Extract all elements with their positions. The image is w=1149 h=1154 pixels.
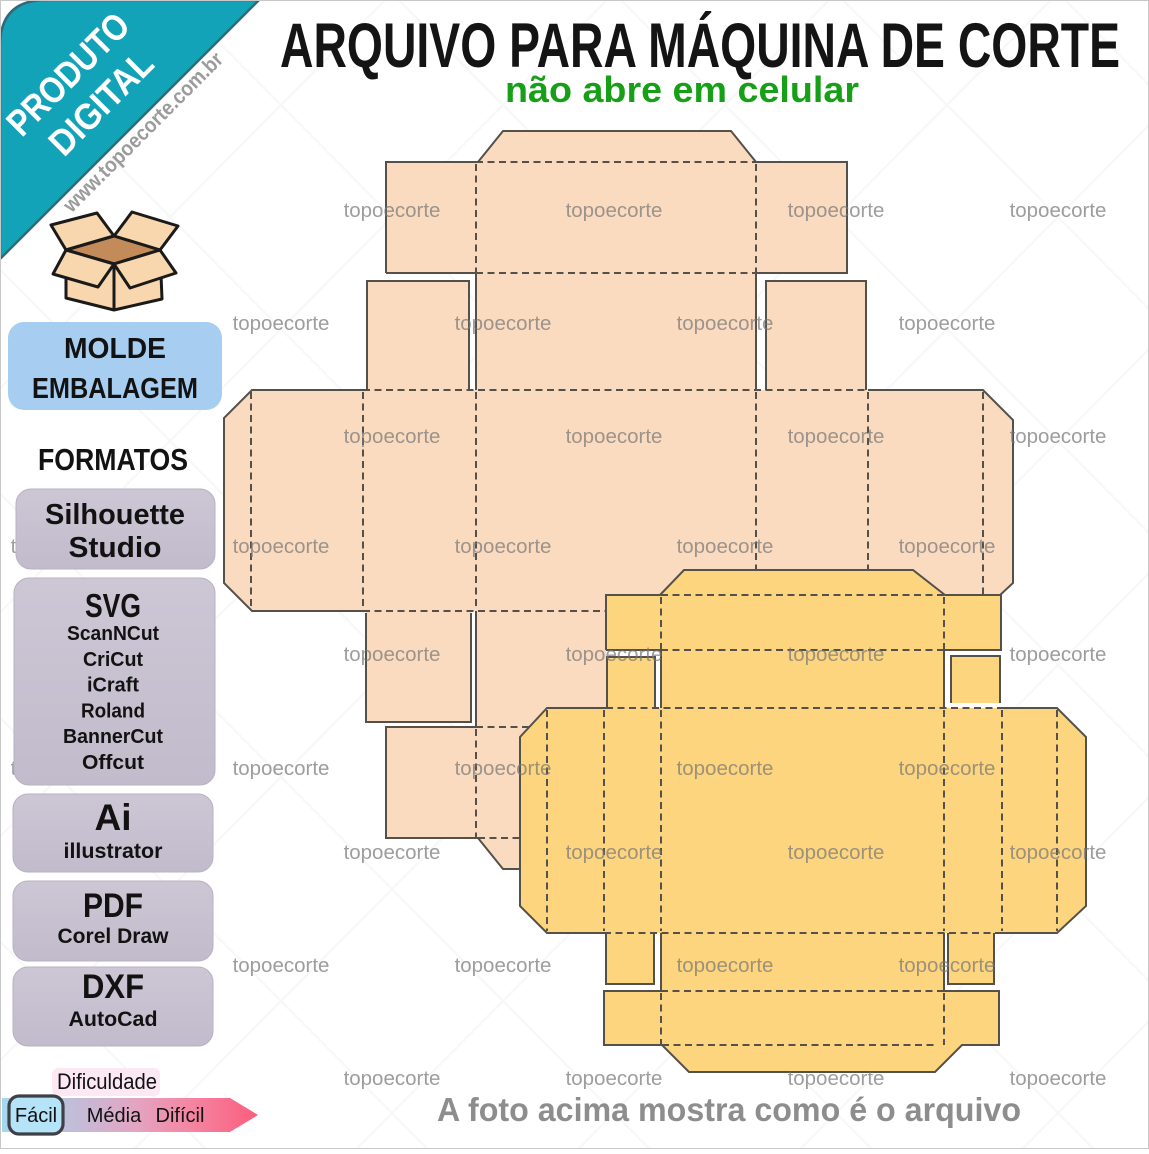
svg-text:topoecorte: topoecorte xyxy=(1010,841,1107,864)
svg-text:topoecorte: topoecorte xyxy=(344,199,441,222)
svg-text:Corel Draw: Corel Draw xyxy=(58,925,170,948)
svg-text:topoecorte: topoecorte xyxy=(566,199,663,222)
svg-text:Offcut: Offcut xyxy=(82,752,144,774)
svg-text:topoecorte: topoecorte xyxy=(455,954,552,977)
svg-text:topoecorte: topoecorte xyxy=(788,1067,885,1090)
svg-text:topoecorte: topoecorte xyxy=(788,643,885,666)
svg-text:Dificuldade: Dificuldade xyxy=(57,1069,157,1094)
svg-text:topoecorte: topoecorte xyxy=(899,954,996,977)
svg-text:topoecorte: topoecorte xyxy=(899,535,996,558)
svg-text:topoecorte: topoecorte xyxy=(788,841,885,864)
svg-text:iCraft: iCraft xyxy=(87,675,139,697)
svg-text:topoecorte: topoecorte xyxy=(233,535,330,558)
svg-text:topoecorte: topoecorte xyxy=(899,312,996,335)
svg-text:topoecorte: topoecorte xyxy=(1010,199,1107,222)
svg-text:topoecorte: topoecorte xyxy=(455,757,552,780)
svg-text:DXF: DXF xyxy=(82,968,144,1006)
svg-text:topoecorte: topoecorte xyxy=(455,535,552,558)
svg-text:A foto acima mostra como é o a: A foto acima mostra como é o arquivo xyxy=(437,1091,1021,1128)
svg-text:topoecorte: topoecorte xyxy=(1010,425,1107,448)
svg-text:topoecorte: topoecorte xyxy=(677,757,774,780)
svg-text:Fácil: Fácil xyxy=(15,1105,57,1127)
svg-text:topoecorte: topoecorte xyxy=(1010,1067,1107,1090)
svg-text:topoecorte: topoecorte xyxy=(566,643,663,666)
svg-text:topoecorte: topoecorte xyxy=(233,954,330,977)
svg-text:Média: Média xyxy=(87,1105,142,1127)
svg-text:topoecorte: topoecorte xyxy=(566,425,663,448)
svg-text:topoecorte: topoecorte xyxy=(344,643,441,666)
svg-text:topoecorte: topoecorte xyxy=(566,1067,663,1090)
svg-text:Silhouette: Silhouette xyxy=(45,499,185,531)
svg-text:topoecorte: topoecorte xyxy=(233,757,330,780)
svg-text:ScanNCut: ScanNCut xyxy=(67,623,159,645)
svg-text:BannerCut: BannerCut xyxy=(63,726,163,748)
svg-text:topoecorte: topoecorte xyxy=(677,535,774,558)
svg-text:illustrator: illustrator xyxy=(64,840,163,863)
svg-text:topoecorte: topoecorte xyxy=(788,425,885,448)
svg-text:EMBALAGEM: EMBALAGEM xyxy=(32,373,198,405)
svg-text:topoecorte: topoecorte xyxy=(566,841,663,864)
svg-text:topoecorte: topoecorte xyxy=(677,312,774,335)
svg-text:topoecorte: topoecorte xyxy=(455,312,552,335)
svg-text:Roland: Roland xyxy=(81,700,145,722)
svg-text:topoecorte: topoecorte xyxy=(788,199,885,222)
svg-text:topoecorte: topoecorte xyxy=(677,954,774,977)
svg-text:AutoCad: AutoCad xyxy=(69,1008,158,1031)
svg-text:CriCut: CriCut xyxy=(83,649,143,671)
svg-text:topoecorte: topoecorte xyxy=(1010,643,1107,666)
svg-text:topoecorte: topoecorte xyxy=(899,757,996,780)
svg-text:Difícil: Difícil xyxy=(156,1105,205,1127)
svg-text:não abre em celular: não abre em celular xyxy=(505,69,859,110)
svg-text:topoecorte: topoecorte xyxy=(344,1067,441,1090)
svg-text:Studio: Studio xyxy=(69,532,162,564)
svg-text:topoecorte: topoecorte xyxy=(344,425,441,448)
svg-text:topoecorte: topoecorte xyxy=(344,841,441,864)
svg-text:FORMATOS: FORMATOS xyxy=(38,442,188,477)
svg-text:Ai: Ai xyxy=(95,797,132,838)
svg-text:SVG: SVG xyxy=(85,587,141,624)
svg-text:topoecorte: topoecorte xyxy=(233,312,330,335)
svg-text:PDF: PDF xyxy=(83,887,143,925)
svg-text:MOLDE: MOLDE xyxy=(64,333,166,365)
